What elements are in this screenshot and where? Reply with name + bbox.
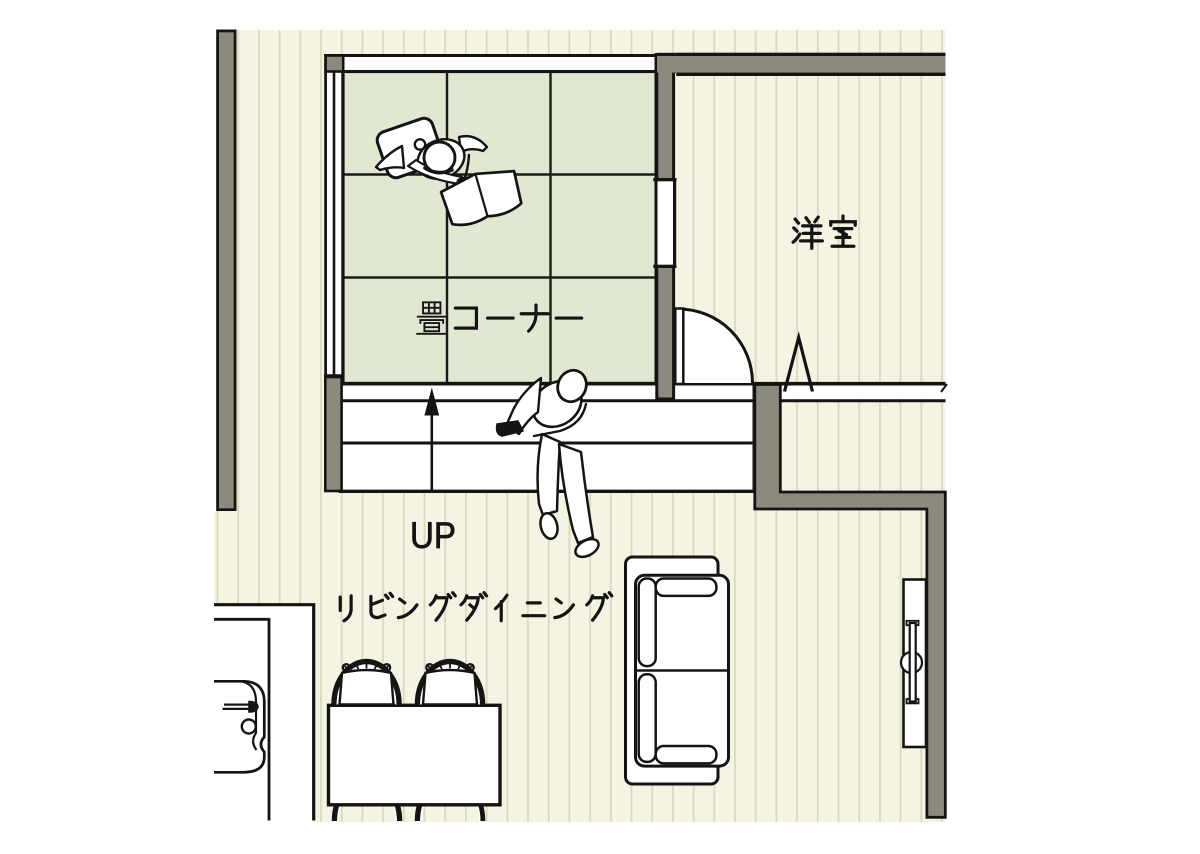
svg-text:UP: UP [410,515,456,556]
